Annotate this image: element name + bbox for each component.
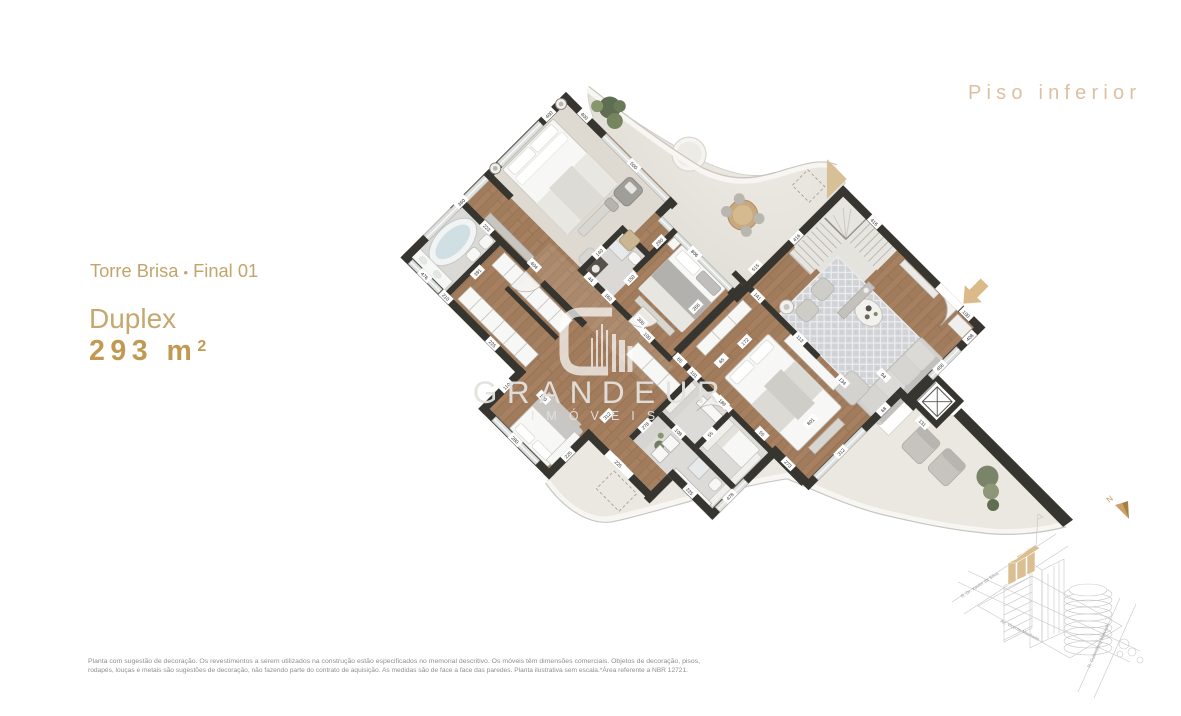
svg-text:Piso inferior: Piso inferior: [968, 82, 1141, 104]
svg-text:rodapés, louças e metais são s: rodapés, louças e metais são sugestões d…: [88, 665, 688, 674]
svg-text:Torre Brisa • Final 01: Torre Brisa • Final 01: [90, 260, 258, 281]
svg-text:293 m2: 293 m2: [89, 335, 212, 367]
svg-text:Duplex: Duplex: [89, 303, 176, 334]
svg-text:Planta com sugestão de decoraç: Planta com sugestão de decoração. Os rev…: [88, 658, 700, 665]
svg-text:IMÓVEIS: IMÓVEIS: [531, 408, 667, 423]
svg-text:GRANDEUR: GRANDEUR: [473, 374, 729, 410]
